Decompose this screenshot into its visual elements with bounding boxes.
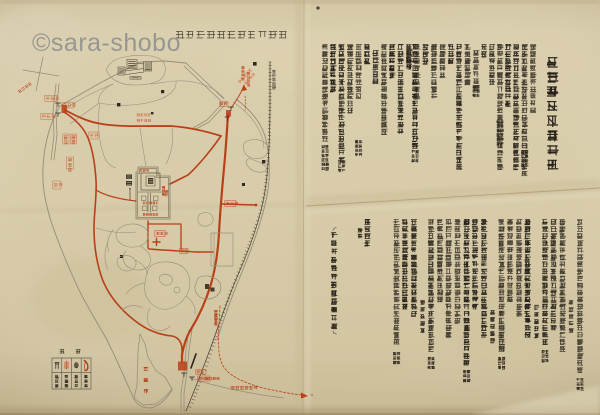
svg-text:©sara-shobo: ©sara-shobo — [32, 29, 181, 57]
